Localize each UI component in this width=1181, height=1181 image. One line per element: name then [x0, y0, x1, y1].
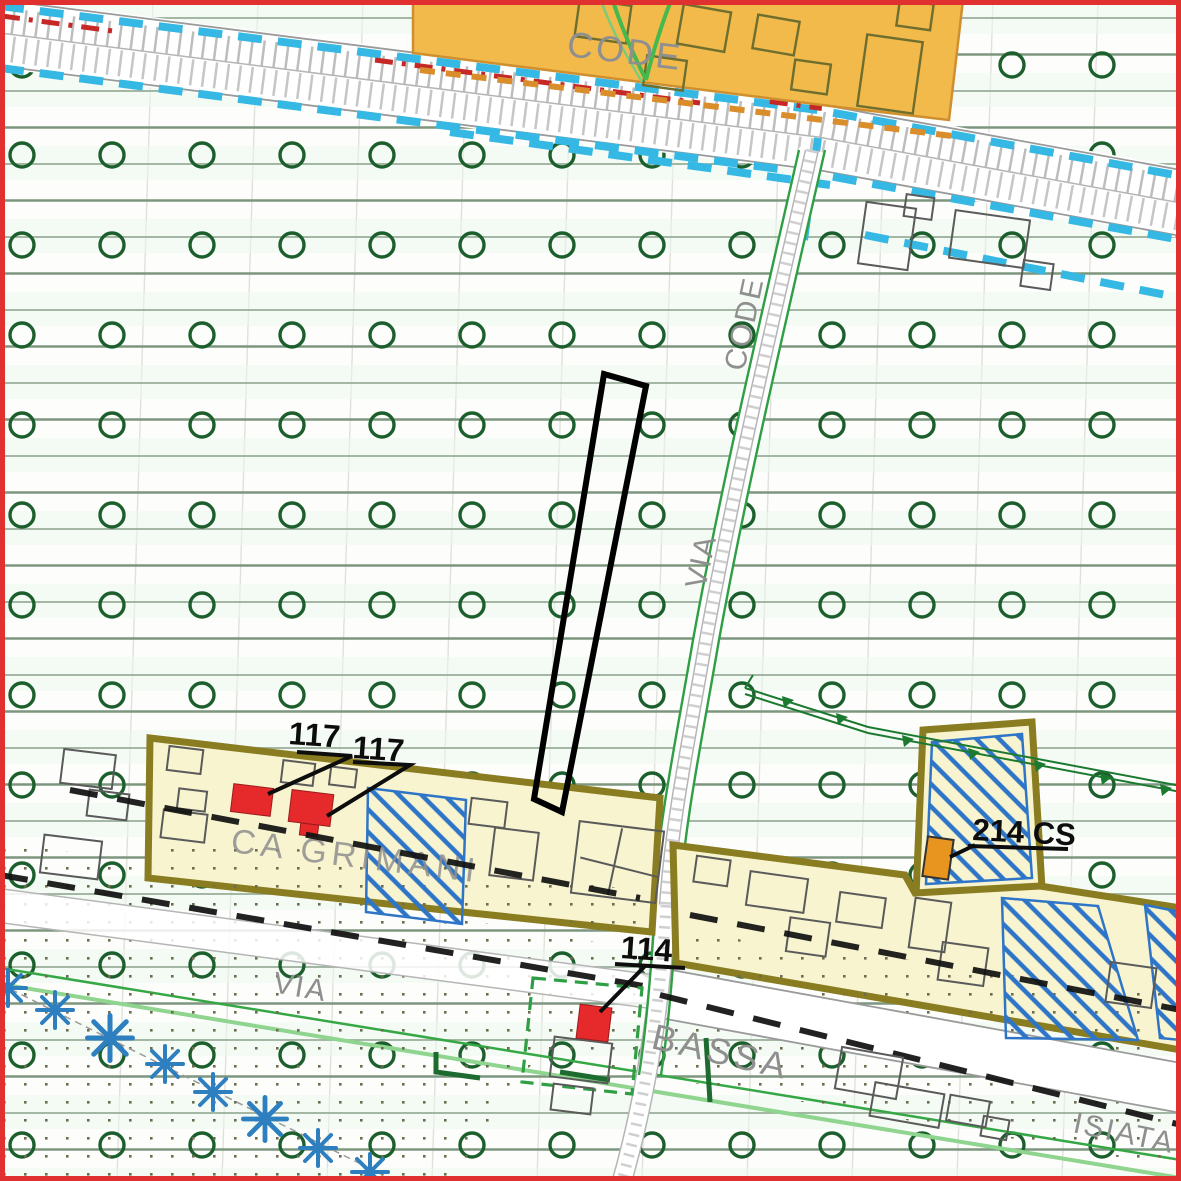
tree-star-icon — [147, 1046, 183, 1082]
map-frame: CODE — [0, 0, 1181, 1181]
tree-star-icon — [37, 992, 73, 1028]
heritage-building-114 — [576, 1004, 612, 1042]
tree-star-icon — [195, 1074, 231, 1110]
label-117-a: 117 — [288, 715, 342, 755]
building-214-cs — [922, 836, 953, 879]
tree-star-icon — [243, 1097, 286, 1140]
label-214-cs: 214 CS — [972, 812, 1077, 852]
label-117-b: 117 — [352, 729, 406, 769]
label-114: 114 — [620, 929, 674, 969]
heritage-building-117a — [230, 784, 273, 817]
heritage-building-117b — [288, 790, 334, 827]
tree-star-icon — [88, 1016, 133, 1061]
tree-star-icon — [300, 1130, 336, 1166]
map-canvas[interactable]: CODE — [0, 0, 1181, 1181]
